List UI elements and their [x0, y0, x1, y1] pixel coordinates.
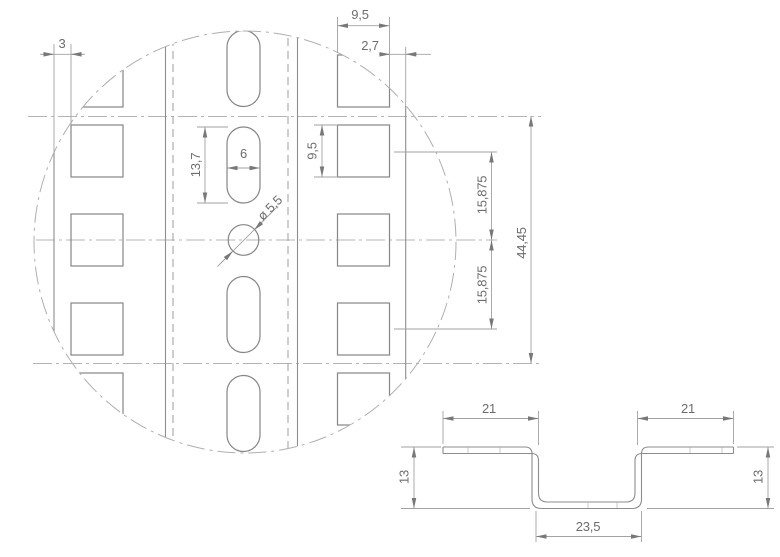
dimension-row-pitch-lower: 15,875	[394, 240, 497, 329]
profile-outer-surface	[443, 447, 734, 509]
dimension-slot-length: 13,7	[188, 127, 228, 203]
dimension-hole-diameter: ø 5,5	[218, 192, 286, 266]
profile-inner-surface	[443, 454, 734, 503]
dim-text: 6	[240, 146, 247, 161]
square-hole	[338, 125, 390, 177]
slot-hole	[227, 31, 260, 107]
dimension-flange-left: 21	[443, 401, 539, 445]
square-hole	[71, 373, 123, 425]
dim-text: 13	[397, 470, 412, 484]
section-view-geometry	[443, 447, 734, 509]
square-hole	[338, 55, 390, 107]
square-hole	[71, 303, 123, 355]
dim-text: 21	[482, 401, 496, 416]
dim-text: 44,45	[514, 227, 529, 259]
slot-hole	[227, 127, 260, 203]
dimension-unit-height: 44,45	[514, 116, 531, 364]
technical-drawing: 3 9,5 2,7 9,5 13,7 6 ø 5,5 1	[0, 0, 780, 557]
dim-text: 3	[58, 36, 65, 51]
detail-view-geometry	[54, 25, 406, 460]
dimension-channel-width: 23,5	[536, 511, 642, 542]
square-hole	[71, 125, 123, 177]
dim-text: ø 5,5	[254, 192, 285, 223]
square-hole	[338, 373, 390, 425]
dim-text: 13	[751, 470, 766, 484]
dimension-square-height: 9,5	[305, 125, 339, 177]
dim-text: 13,7	[188, 153, 203, 178]
slot-hole	[227, 277, 260, 353]
center-lines	[28, 117, 541, 364]
dim-text: 15,875	[475, 176, 490, 215]
sheet-thickness-ticks	[468, 448, 722, 508]
square-hole	[71, 55, 123, 107]
dimension-slot-width: 6	[227, 146, 260, 168]
dim-text: 21	[681, 401, 695, 416]
dim-text: 15,875	[475, 266, 490, 305]
dim-text: 2,7	[361, 38, 378, 53]
detail-view-circle	[34, 31, 456, 453]
dimension-depth-left: 13	[397, 447, 531, 509]
dim-text: 9,5	[305, 142, 320, 159]
drawing-sheet: 3 9,5 2,7 9,5 13,7 6 ø 5,5 1	[0, 0, 780, 557]
dim-text: 23,5	[576, 519, 601, 534]
dimension-row-pitch-upper: 15,875	[394, 152, 497, 240]
square-hole	[338, 303, 390, 355]
dim-text: 9,5	[351, 7, 368, 22]
dimension-edge-offset-left: 3	[40, 36, 85, 153]
dimension-flange-right: 21	[638, 401, 734, 445]
slot-hole	[227, 376, 260, 452]
dimension-depth-right: 13	[647, 447, 774, 509]
